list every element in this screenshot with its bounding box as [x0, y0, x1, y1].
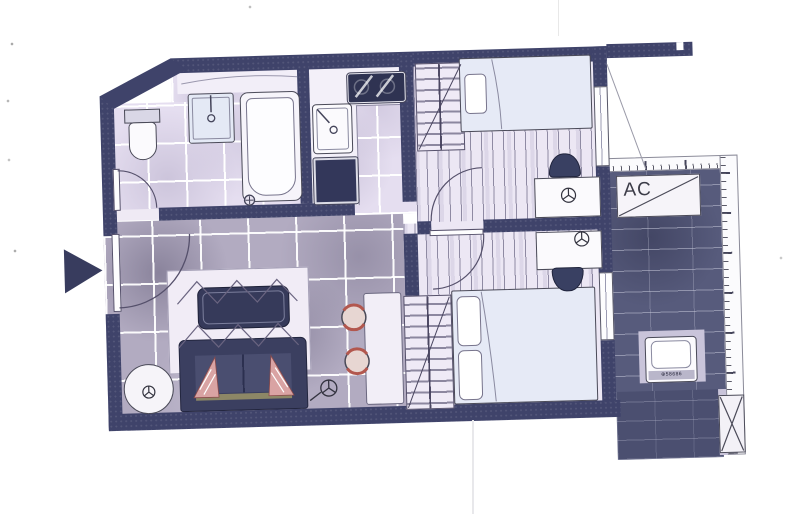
- paper-crease-bottom: [472, 420, 474, 514]
- paper-crease-top: [558, 0, 559, 36]
- scan-noise: [0, 0, 800, 514]
- scanned-floor-plan-page: AC ⊕58686: [0, 0, 800, 514]
